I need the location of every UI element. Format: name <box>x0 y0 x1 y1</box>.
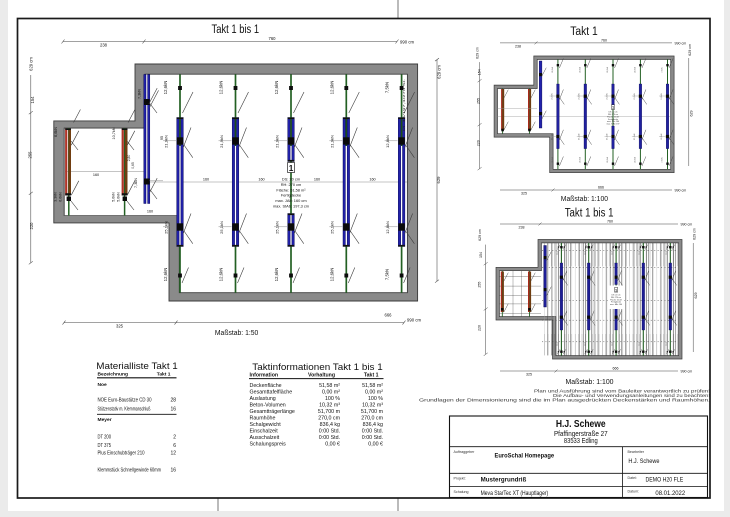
svg-text:Meva StarTec XT (Hauptlager): Meva StarTec XT (Hauptlager) <box>481 490 549 497</box>
svg-text:Gesamttafelfläche: Gesamttafelfläche <box>250 389 293 395</box>
svg-text:12,6: 12,6 <box>639 342 641 346</box>
svg-text:990 cm: 990 cm <box>681 369 693 373</box>
svg-text:12,6: 12,6 <box>584 342 586 346</box>
svg-text:Takt 1: Takt 1 <box>157 371 171 377</box>
svg-text:21,9kN: 21,9kN <box>274 135 279 148</box>
svg-text:DT 375: DT 375 <box>98 443 112 449</box>
svg-text:154: 154 <box>479 252 483 258</box>
svg-text:0,00 m²: 0,00 m² <box>365 389 383 395</box>
svg-text:3,3kN: 3,3kN <box>54 192 58 202</box>
svg-text:5,6kN: 5,6kN <box>117 192 121 202</box>
svg-text:629 cm: 629 cm <box>688 44 692 56</box>
svg-text:DS: 20 cm: DS: 20 cm <box>282 177 300 182</box>
svg-text:Raumhöhe: Raumhöhe <box>250 415 276 421</box>
svg-text:Meyer: Meyer <box>98 417 112 423</box>
svg-text:160: 160 <box>147 209 153 213</box>
svg-text:RH: 270 cm: RH: 270 cm <box>281 182 302 187</box>
svg-text:12,8kN: 12,8kN <box>661 133 663 140</box>
svg-text:760: 760 <box>607 220 613 224</box>
svg-text:666: 666 <box>598 186 604 190</box>
svg-text:255: 255 <box>28 151 33 159</box>
svg-text:325: 325 <box>116 324 124 329</box>
svg-text:25,1kN: 25,1kN <box>219 221 224 234</box>
svg-text:12,6kN: 12,6kN <box>274 81 279 95</box>
svg-text:Pl. 45/197,3/270 St.: Pl. 45/197,3/270 St. <box>402 79 406 131</box>
svg-text:629 cm: 629 cm <box>476 47 480 59</box>
svg-text:21,9kN: 21,9kN <box>163 135 168 148</box>
svg-text:83533 Edling: 83533 Edling <box>564 436 598 445</box>
svg-text:Auftraggeber: Auftraggeber <box>454 450 476 454</box>
svg-text:160: 160 <box>369 178 375 182</box>
svg-text:12,6: 12,6 <box>584 251 586 255</box>
svg-text:1: 1 <box>615 288 617 292</box>
svg-text:0:00 Std.: 0:00 Std. <box>362 428 383 434</box>
svg-text:12: 12 <box>170 451 176 457</box>
svg-text:12,6kN: 12,6kN <box>274 268 279 282</box>
svg-text:25,1kN: 25,1kN <box>606 133 608 140</box>
svg-text:21,9kN: 21,9kN <box>606 93 608 100</box>
svg-text:238: 238 <box>100 43 108 48</box>
svg-text:21,9kN: 21,9kN <box>579 93 581 100</box>
svg-text:990 cm: 990 cm <box>681 222 693 226</box>
svg-text:EuroSchal Homepage: EuroSchal Homepage <box>495 452 555 459</box>
svg-text:Taktinformationen Takt 1 bis: Taktinformationen Takt 1 bis 1 <box>252 362 382 372</box>
svg-text:Maßstab: 1:100: Maßstab: 1:100 <box>561 194 608 203</box>
svg-text:6,6kN: 6,6kN <box>54 127 58 137</box>
svg-text:10,32 m³: 10,32 m³ <box>319 402 340 408</box>
svg-text:Takt 1 bis 1: Takt 1 bis 1 <box>565 208 614 220</box>
svg-text:255: 255 <box>478 282 482 288</box>
svg-text:629 cm: 629 cm <box>478 229 482 241</box>
svg-text:238: 238 <box>519 226 525 230</box>
svg-text:12,6kN: 12,6kN <box>219 268 224 282</box>
svg-text:Noe: Noe <box>98 382 108 388</box>
svg-text:Takt 1 bis 1: Takt 1 bis 1 <box>212 24 260 36</box>
svg-text:2,80: 2,80 <box>127 155 131 162</box>
svg-text:Fertigdecke: Fertigdecke <box>281 193 301 198</box>
svg-text:25,1kN: 25,1kN <box>634 133 636 140</box>
svg-text:Schalgewicht: Schalgewicht <box>250 422 282 428</box>
svg-text:12,6kN: 12,6kN <box>634 66 636 73</box>
svg-text:12,6: 12,6 <box>666 251 668 255</box>
svg-text:DEMO H20 FLE: DEMO H20 FLE <box>646 477 684 484</box>
svg-text:16: 16 <box>170 467 176 473</box>
svg-text:7,5kN: 7,5kN <box>385 82 390 93</box>
svg-text:12,6: 12,6 <box>557 251 559 255</box>
svg-text:1: 1 <box>612 106 614 110</box>
svg-text:08.01.2022: 08.01.2022 <box>655 490 685 497</box>
svg-text:Mustergrundriß: Mustergrundriß <box>481 477 527 484</box>
svg-text:1: 1 <box>289 164 294 173</box>
svg-text:Einschalzeit: Einschalzeit <box>250 428 279 434</box>
svg-text:836,4 kg: 836,4 kg <box>363 422 383 428</box>
svg-text:12,6: 12,6 <box>612 251 614 255</box>
svg-text:DT 200: DT 200 <box>98 435 112 441</box>
svg-text:238: 238 <box>515 45 521 49</box>
svg-text:160: 160 <box>93 173 99 177</box>
svg-text:Datei:: Datei: <box>628 476 637 480</box>
svg-text:5,6kN: 5,6kN <box>112 192 116 202</box>
svg-text:Auslastung: Auslastung <box>250 396 276 402</box>
svg-text:Materialliste Takt 1: Materialliste Takt 1 <box>96 361 178 371</box>
svg-text:6,6kN: 6,6kN <box>59 192 63 202</box>
svg-text:666: 666 <box>385 313 393 318</box>
svg-text:95: 95 <box>160 136 164 140</box>
svg-text:0,00 €: 0,00 € <box>368 441 383 447</box>
svg-text:666: 666 <box>613 367 619 371</box>
svg-text:25,1kN: 25,1kN <box>551 133 553 140</box>
svg-text:Maßstab: 1:100: Maßstab: 1:100 <box>566 377 614 386</box>
svg-text:max. JAb: 160 cm: max. JAb: 160 cm <box>275 198 306 203</box>
svg-text:160: 160 <box>258 178 264 182</box>
svg-text:max. StAb: 197: max. StAb: 197 <box>607 123 620 126</box>
svg-text:100 %: 100 % <box>368 396 383 402</box>
svg-text:629: 629 <box>436 176 441 184</box>
svg-text:629 cm: 629 cm <box>693 228 697 240</box>
svg-text:270,0 cm: 270,0 cm <box>361 415 383 421</box>
svg-text:12,8kN: 12,8kN <box>661 93 663 100</box>
svg-text:0,00 €: 0,00 € <box>325 441 340 447</box>
svg-text:12,6: 12,6 <box>666 342 668 346</box>
svg-text:max. StAb: 197,3 cm: max. StAb: 197,3 cm <box>273 204 309 209</box>
svg-text:Plus Einschubträger 210: Plus Einschubträger 210 <box>98 451 145 457</box>
svg-text:Takt 1: Takt 1 <box>364 372 379 378</box>
svg-text:12,8kN: 12,8kN <box>385 135 390 148</box>
svg-text:12,6kN: 12,6kN <box>552 156 554 163</box>
svg-text:990 cm: 990 cm <box>675 41 687 45</box>
svg-text:51,700 m: 51,700 m <box>318 409 341 415</box>
svg-text:0:00 Std.: 0:00 Std. <box>362 435 383 441</box>
svg-text:990 cm: 990 cm <box>400 39 415 44</box>
svg-text:270,0 cm: 270,0 cm <box>318 415 340 421</box>
svg-text:25,1kN: 25,1kN <box>579 133 581 140</box>
svg-text:Ausschalzeit: Ausschalzeit <box>250 435 280 441</box>
svg-text:325: 325 <box>526 373 532 377</box>
svg-text:NOE Euro-Baustütze CD 30: NOE Euro-Baustütze CD 30 <box>98 398 152 404</box>
svg-text:12,6kN: 12,6kN <box>163 268 168 282</box>
svg-text:Klemmstück Schnellgewinde 60mm: Klemmstück Schnellgewinde 60mm <box>98 467 162 473</box>
svg-text:990 cm: 990 cm <box>407 317 422 322</box>
svg-text:12,6kN: 12,6kN <box>163 81 168 95</box>
svg-text:21,9kN: 21,9kN <box>330 135 335 148</box>
svg-text:21,9kN: 21,9kN <box>551 93 553 100</box>
svg-text:Deckenfläche: Deckenfläche <box>250 383 282 389</box>
svg-text:max. JAb: 160: max. JAb: 160 <box>610 303 622 306</box>
svg-text:21,9kN: 21,9kN <box>634 93 636 100</box>
svg-text:12,6kN: 12,6kN <box>607 156 609 163</box>
svg-text:Datum:: Datum: <box>628 490 640 494</box>
svg-text:154: 154 <box>477 69 481 75</box>
svg-text:220: 220 <box>478 325 482 331</box>
svg-text:25,1kN: 25,1kN <box>163 221 168 234</box>
svg-text:12,6kN: 12,6kN <box>219 81 224 95</box>
svg-text:760: 760 <box>269 36 277 41</box>
svg-text:51,700 m: 51,700 m <box>361 409 384 415</box>
svg-text:6: 6 <box>173 443 176 449</box>
svg-text:7,5kN: 7,5kN <box>385 269 390 280</box>
svg-text:836,4 kg: 836,4 kg <box>320 422 340 428</box>
svg-text:Takt 1: Takt 1 <box>570 26 598 38</box>
svg-text:100 %: 100 % <box>325 396 340 402</box>
svg-text:12,6kN: 12,6kN <box>552 66 554 73</box>
svg-text:12,6: 12,6 <box>612 342 614 346</box>
svg-text:Stützenstativ m. Klemmanschluß: Stützenstativ m. Klemmanschluß <box>98 407 151 413</box>
svg-text:7,3kN: 7,3kN <box>134 178 138 188</box>
svg-text:629: 629 <box>694 293 698 299</box>
svg-text:H.J. Schewe: H.J. Schewe <box>628 458 659 465</box>
svg-text:Schalung: Schalung <box>454 490 469 494</box>
svg-text:Vorhaltung: Vorhaltung <box>308 372 335 378</box>
svg-text:25,1kN: 25,1kN <box>330 221 335 234</box>
svg-text:154: 154 <box>30 96 35 104</box>
svg-text:12,8kN: 12,8kN <box>385 221 390 234</box>
svg-text:160: 160 <box>203 178 209 182</box>
svg-text:Bearbeiter: Bearbeiter <box>628 450 645 454</box>
svg-text:Bezeichnung: Bezeichnung <box>98 371 128 377</box>
svg-text:12,6kN: 12,6kN <box>579 66 581 73</box>
svg-text:12,6kN: 12,6kN <box>329 81 334 95</box>
svg-text:Fläche: 51,58 m²: Fläche: 51,58 m² <box>276 187 306 192</box>
svg-text:12,6: 12,6 <box>557 342 559 346</box>
svg-text:Beton-Volumen: Beton-Volumen <box>250 402 286 408</box>
svg-text:2: 2 <box>173 435 176 441</box>
svg-text:760: 760 <box>601 39 607 43</box>
svg-text:21,9kN: 21,9kN <box>219 135 224 148</box>
svg-text:10,32 m³: 10,32 m³ <box>362 402 383 408</box>
svg-text:Grundlagen der Dimensionierung: Grundlagen der Dimensionierung sind die … <box>419 398 710 403</box>
svg-text:990 cm: 990 cm <box>675 188 687 192</box>
svg-text:28: 28 <box>170 398 176 404</box>
svg-text:Projekt:: Projekt: <box>454 476 466 480</box>
svg-text:7,3kN: 7,3kN <box>138 89 142 99</box>
svg-text:160: 160 <box>314 178 320 182</box>
svg-text:Schalungspreis: Schalungspreis <box>250 441 287 447</box>
svg-text:16: 16 <box>170 407 176 413</box>
svg-text:0,00 m²: 0,00 m² <box>322 389 340 395</box>
svg-text:325: 325 <box>521 192 527 196</box>
svg-text:Information: Information <box>250 372 279 378</box>
svg-text:0,65: 0,65 <box>131 162 135 169</box>
svg-text:10,7kN: 10,7kN <box>112 127 116 139</box>
svg-text:Maßstab: 1:50: Maßstab: 1:50 <box>215 328 258 337</box>
svg-text:255: 255 <box>476 98 480 104</box>
svg-text:7,5kN: 7,5kN <box>662 157 664 163</box>
svg-text:51,58 m²: 51,58 m² <box>362 383 383 389</box>
svg-text:25,1kN: 25,1kN <box>274 221 279 234</box>
svg-text:0:00 Std.: 0:00 Std. <box>319 428 340 434</box>
svg-text:629: 629 <box>690 111 694 117</box>
svg-text:12,6kN: 12,6kN <box>329 268 334 282</box>
svg-text:12,6kN: 12,6kN <box>579 156 581 163</box>
svg-text:12,6kN: 12,6kN <box>607 66 609 73</box>
svg-text:7,5kN: 7,5kN <box>662 67 664 73</box>
svg-text:0:00 Std.: 0:00 Std. <box>319 435 340 441</box>
svg-text:51,58 m²: 51,58 m² <box>319 383 340 389</box>
svg-text:220: 220 <box>476 140 480 146</box>
svg-text:12,6kN: 12,6kN <box>634 156 636 163</box>
svg-text:629 cm: 629 cm <box>436 65 441 79</box>
svg-text:220: 220 <box>29 222 34 230</box>
svg-text:629 cm: 629 cm <box>29 57 34 71</box>
svg-text:Gesamtträgerlänge: Gesamtträgerlänge <box>250 409 295 415</box>
svg-text:12,6: 12,6 <box>639 251 641 255</box>
